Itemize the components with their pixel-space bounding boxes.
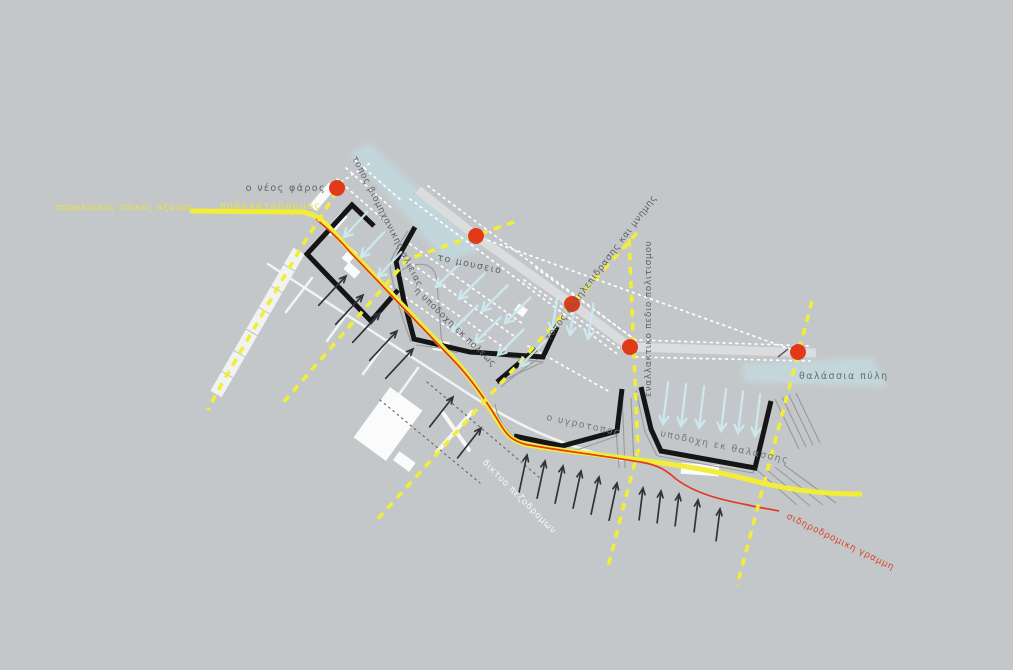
- background: [0, 0, 1013, 670]
- node-sea-gate: [790, 344, 806, 360]
- node-culture-field: [622, 339, 638, 355]
- label-sea-gate: θαλάσσια πύλη: [799, 371, 889, 382]
- label-coastal-axis: παραλιακος οδικος αξονας: [55, 203, 194, 213]
- label-bike-path: ποδηλατοδρομος: [220, 201, 321, 212]
- label-culture-field: εναλλακτικο πεδιο πολιτισμου: [644, 240, 654, 397]
- node-lighthouse: [329, 180, 345, 196]
- label-new-lighthouse: ο νέος φάρος: [246, 183, 326, 194]
- node-museum: [468, 228, 484, 244]
- site-plan: παραλιακος οδικος αξονας ποδηλατοδρομος …: [0, 0, 1013, 670]
- site-plan-stage: παραλιακος οδικος αξονας ποδηλατοδρομος …: [0, 0, 1013, 670]
